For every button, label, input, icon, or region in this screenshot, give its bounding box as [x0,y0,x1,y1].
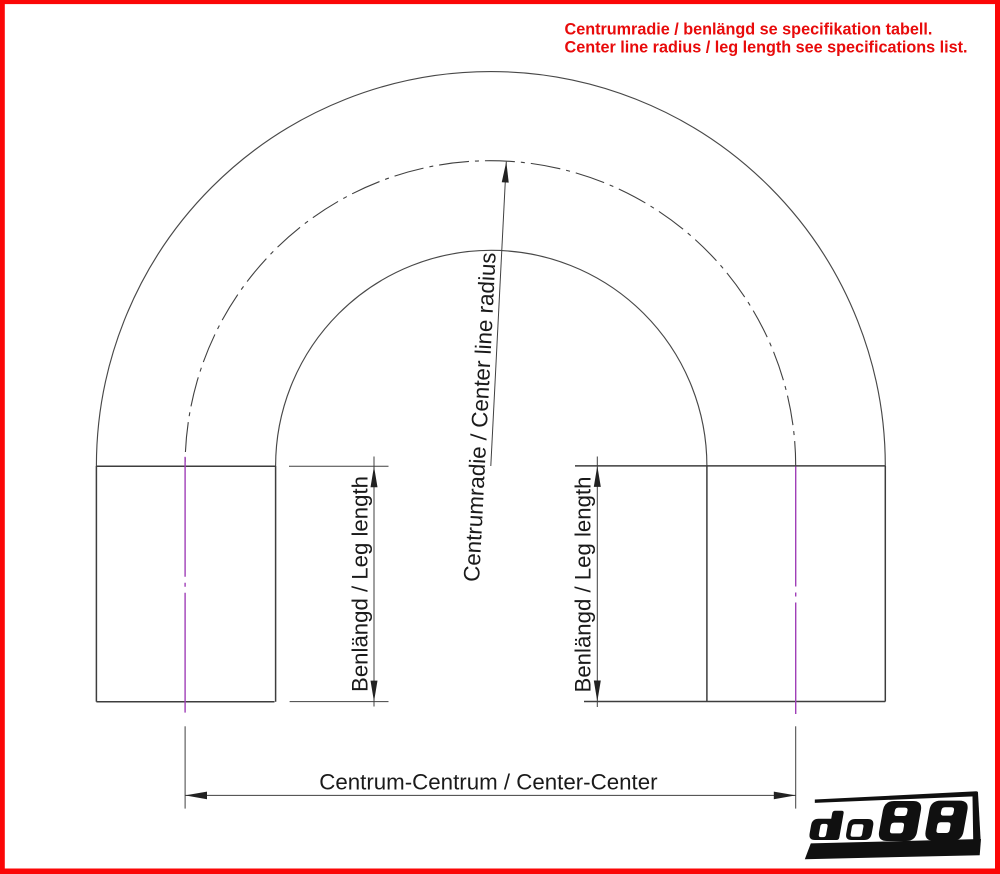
svg-text:Center line radius / leg lengt: Center line radius / leg length see spec… [565,39,968,57]
svg-text:Benlängd / Leg length: Benlängd / Leg length [347,476,372,692]
svg-text:Benlängd / Leg length: Benlängd / Leg length [570,477,595,693]
svg-text:Centrum-Centrum / Center-Cente: Centrum-Centrum / Center-Center [319,770,658,795]
svg-text:Centrumradie / benlängd se spe: Centrumradie / benlängd se specifikation… [565,21,933,39]
